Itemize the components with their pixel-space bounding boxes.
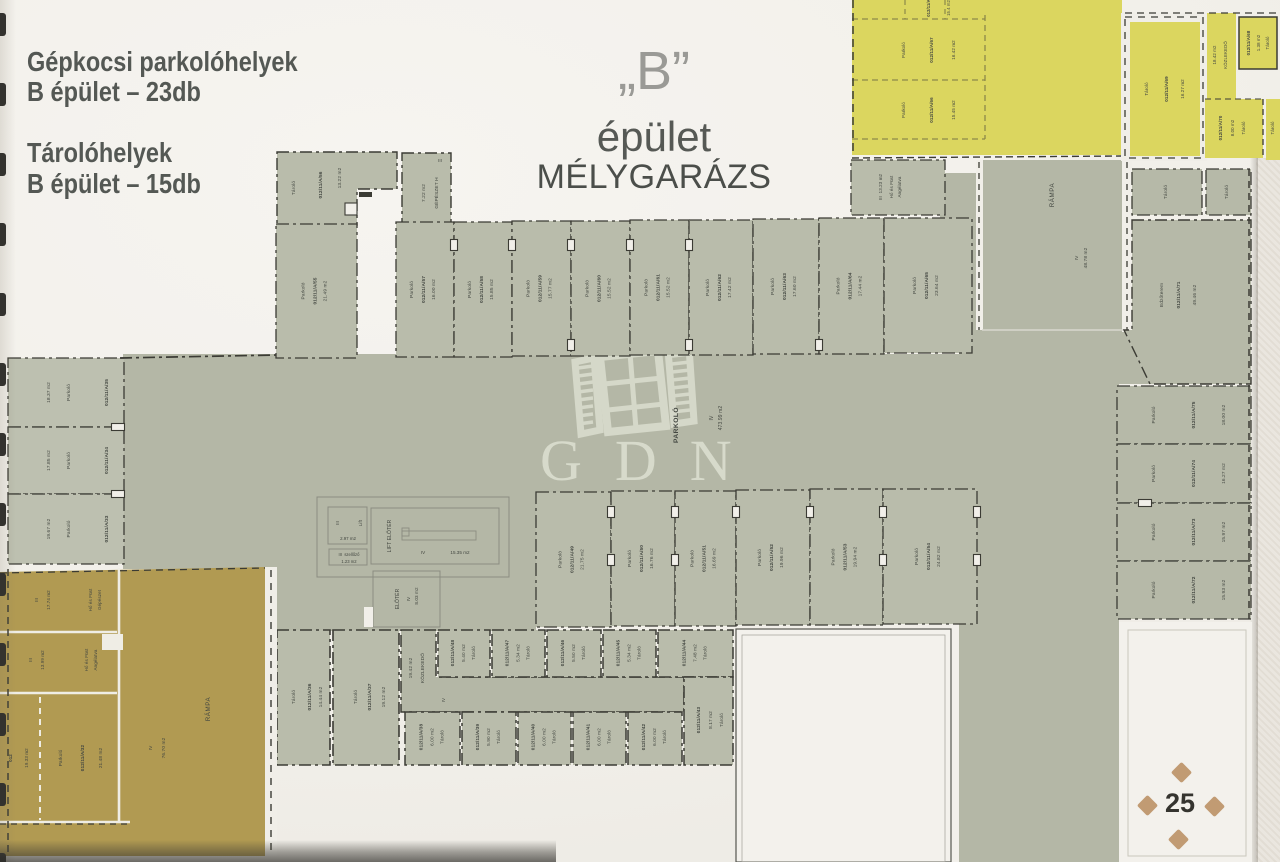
svg-text:19.33 m2: 19.33 m2 xyxy=(24,748,29,768)
svg-text:012/11/A/57: 012/11/A/57 xyxy=(421,276,427,303)
svg-text:Gépészet: Gépészet xyxy=(97,589,102,610)
svg-text:012/11/A/52: 012/11/A/52 xyxy=(769,544,775,571)
svg-text:Parkoló: Parkoló xyxy=(585,280,591,297)
svg-text:GÉPÉSZET H: GÉPÉSZET H xyxy=(433,177,440,209)
svg-text:PARKOLÓ: PARKOLÓ xyxy=(671,407,680,443)
svg-text:012/11/A/46: 012/11/A/46 xyxy=(560,640,565,667)
svg-text:Tároló: Tároló xyxy=(1144,82,1149,96)
svg-text:Tároló: Tároló xyxy=(581,646,586,660)
svg-text:19.67 m2: 19.67 m2 xyxy=(46,518,52,539)
svg-text:15.85 m2: 15.85 m2 xyxy=(489,279,495,300)
svg-text:012/11/A/35: 012/11/A/35 xyxy=(104,379,110,406)
svg-text:Parkoló: Parkoló xyxy=(627,550,633,567)
svg-text:RÁMPA: RÁMPA xyxy=(1049,182,1056,207)
svg-text:012/11/A/67: 012/11/A/67 xyxy=(929,37,934,63)
svg-text:012/11/A/43: 012/11/A/43 xyxy=(696,707,701,734)
svg-text:19.42 m2: 19.42 m2 xyxy=(408,657,414,678)
svg-text:Tároló: Tároló xyxy=(471,646,476,660)
svg-text:Parkoló: Parkoló xyxy=(690,550,696,567)
svg-text:Parkoló: Parkoló xyxy=(901,102,906,118)
svg-text:16.42 m2: 16.42 m2 xyxy=(951,40,956,60)
svg-text:Parkoló: Parkoló xyxy=(912,277,918,294)
svg-text:8.03 m2: 8.03 m2 xyxy=(414,587,419,605)
svg-text:012/11/A/58: 012/11/A/58 xyxy=(479,276,485,303)
svg-text:1.23 m2: 1.23 m2 xyxy=(341,559,357,564)
svg-text:Parkoló: Parkoló xyxy=(409,281,415,298)
svg-text:III: III xyxy=(28,658,33,662)
svg-text:19.94 m2: 19.94 m2 xyxy=(853,546,859,567)
svg-text:13.22 m2: 13.22 m2 xyxy=(337,167,343,188)
svg-text:15.35 m2: 15.35 m2 xyxy=(450,550,470,555)
svg-text:17.85 m2: 17.85 m2 xyxy=(46,450,52,471)
svg-text:012/11/A/38: 012/11/A/38 xyxy=(419,724,424,751)
svg-text:21.48 m2: 21.48 m2 xyxy=(98,748,103,769)
svg-text:012/11/A/37: 012/11/A/37 xyxy=(367,683,373,710)
svg-text:21.49 m2: 21.49 m2 xyxy=(323,280,329,301)
svg-text:Tároló: Tároló xyxy=(1270,121,1275,135)
svg-text:Parkoló: Parkoló xyxy=(836,277,842,294)
svg-text:012/11/A/39: 012/11/A/39 xyxy=(475,724,480,751)
svg-text:012/11/A/63: 012/11/A/63 xyxy=(782,273,788,300)
svg-text:Parkoló: Parkoló xyxy=(1151,406,1157,423)
svg-text:012/11/A/48: 012/11/A/48 xyxy=(450,640,455,667)
svg-text:III szellőző: III szellőző xyxy=(339,552,361,557)
svg-text:15.4 m2: 15.4 m2 xyxy=(946,0,951,16)
svg-text:8.17 m2: 8.17 m2 xyxy=(708,711,713,729)
svg-text:473.99 m2: 473.99 m2 xyxy=(718,406,724,431)
svg-text:Parkoló: Parkoló xyxy=(1151,581,1157,598)
svg-text:17.74 m2: 17.74 m2 xyxy=(46,590,51,610)
svg-text:Tároló: Tároló xyxy=(526,646,531,660)
svg-text:012/11/A/73: 012/11/A/73 xyxy=(1191,518,1197,545)
svg-text:5.34 m2: 5.34 m2 xyxy=(516,644,521,662)
svg-text:012/11/A/47: 012/11/A/47 xyxy=(505,640,510,667)
svg-text:Edzőterem: Edzőterem xyxy=(1159,283,1165,307)
svg-text:012/11/A/69: 012/11/A/69 xyxy=(1164,76,1169,102)
svg-text:IV: IV xyxy=(148,745,154,750)
svg-text:6.00 m2: 6.00 m2 xyxy=(652,728,657,746)
svg-text:KÖZLEKEDŐ: KÖZLEKEDŐ xyxy=(419,653,426,683)
svg-text:012/11/A/42: 012/11/A/42 xyxy=(641,724,646,751)
svg-text:Hő és Füst: Hő és Füst xyxy=(84,648,89,671)
svg-text:012/11/A/56: 012/11/A/56 xyxy=(318,171,324,198)
svg-text:18.00 m2: 18.00 m2 xyxy=(1221,404,1227,425)
svg-text:012/11/A/36: 012/11/A/36 xyxy=(307,683,313,710)
svg-text:19.96 m2: 19.96 m2 xyxy=(779,547,785,568)
svg-text:17.42 m2: 17.42 m2 xyxy=(727,277,733,298)
svg-text:6.00 m2: 6.00 m2 xyxy=(430,728,435,746)
svg-text:5.90 m2: 5.90 m2 xyxy=(486,728,491,746)
svg-text:5.34 m2: 5.34 m2 xyxy=(627,644,632,662)
svg-text:18.42 m2: 18.42 m2 xyxy=(1212,45,1217,65)
svg-text:IV: IV xyxy=(1074,255,1080,260)
svg-text:Parkoló: Parkoló xyxy=(1151,465,1157,482)
svg-text:012/11/A/55: 012/11/A/55 xyxy=(313,277,319,304)
svg-text:Parkoló: Parkoló xyxy=(757,549,763,566)
svg-text:Parkoló: Parkoló xyxy=(558,551,564,568)
svg-text:012/11/A/45: 012/11/A/45 xyxy=(616,640,621,667)
svg-text:012/11/A/75: 012/11/A/75 xyxy=(1191,401,1197,428)
svg-text:Parkoló: Parkoló xyxy=(301,282,307,299)
svg-text:1.38 m2: 1.38 m2 xyxy=(1256,34,1261,51)
svg-text:012/11/A/71: 012/11/A/71 xyxy=(1176,281,1182,308)
svg-text:012/11/A/51: 012/11/A/51 xyxy=(702,545,708,572)
svg-text:Angélatva: Angélatva xyxy=(897,176,902,197)
svg-text:012/11/A/72: 012/11/A/72 xyxy=(1191,576,1197,603)
svg-text:ELŐTÉR: ELŐTÉR xyxy=(394,588,401,609)
svg-text:Tároló: Tároló xyxy=(1163,185,1169,199)
svg-text:012/11/A/61: 012/11/A/61 xyxy=(656,274,662,301)
svg-text:012/11/A/65: 012/11/A/65 xyxy=(924,272,930,299)
svg-text:012/11/A/60: 012/11/A/60 xyxy=(597,275,603,302)
svg-text:012/11/A/50: 012/11/A/50 xyxy=(639,545,645,572)
svg-text:7.22 m2: 7.22 m2 xyxy=(421,184,427,202)
svg-text:Tároló: Tároló xyxy=(353,690,359,704)
svg-text:6.00 m2: 6.00 m2 xyxy=(597,728,602,746)
svg-text:Tároló: Tároló xyxy=(440,730,445,744)
svg-text:012/11/A/40: 012/11/A/40 xyxy=(531,724,536,751)
svg-text:Parkoló: Parkoló xyxy=(831,548,837,565)
svg-text:15.52 m2: 15.52 m2 xyxy=(607,278,613,299)
svg-text:18.37 m2: 18.37 m2 xyxy=(46,382,52,403)
svg-text:15.52 m2: 15.52 m2 xyxy=(666,277,672,298)
svg-text:012/11/A/44: 012/11/A/44 xyxy=(682,640,687,667)
svg-text:Tároló: Tároló xyxy=(703,646,708,660)
svg-text:24.82 m2: 24.82 m2 xyxy=(936,546,942,567)
svg-text:Parkoló: Parkoló xyxy=(705,279,711,296)
svg-text:16.76 m2: 16.76 m2 xyxy=(649,548,655,569)
svg-text:5.50 m2: 5.50 m2 xyxy=(571,644,576,662)
svg-text:Parkoló: Parkoló xyxy=(66,384,72,401)
svg-text:5.40 m2: 5.40 m2 xyxy=(461,644,466,662)
svg-text:012/11/A/33: 012/11/A/33 xyxy=(104,515,110,542)
svg-text:III: III xyxy=(438,158,442,163)
svg-text:012/11/A/59: 012/11/A/59 xyxy=(538,275,544,302)
svg-text:6.00 m2: 6.00 m2 xyxy=(542,728,547,746)
svg-text:LIFT ELŐTÉR: LIFT ELŐTÉR xyxy=(386,519,393,552)
svg-text:Tároló: Tároló xyxy=(1224,185,1230,199)
svg-text:Parkoló: Parkoló xyxy=(901,42,906,58)
svg-text:Angélatva: Angélatva xyxy=(93,649,98,670)
svg-text:Hő és Füst: Hő és Füst xyxy=(889,175,894,198)
svg-text:14.44 m2: 14.44 m2 xyxy=(318,686,324,707)
svg-text:Parkoló: Parkoló xyxy=(526,280,532,297)
svg-text:IV: IV xyxy=(441,698,446,702)
svg-text:Parkoló: Parkoló xyxy=(914,548,920,565)
svg-text:012/11/A/62: 012/11/A/62 xyxy=(717,274,723,301)
svg-text:012/11/A/64: 012/11/A/64 xyxy=(848,272,854,299)
svg-text:Parkoló: Parkoló xyxy=(66,520,72,537)
svg-text:KÖZLEKEDŐ: KÖZLEKEDŐ xyxy=(1223,41,1228,69)
svg-text:15.93 m2: 15.93 m2 xyxy=(1221,579,1227,600)
svg-text:Parkoló: Parkoló xyxy=(770,278,776,295)
svg-text:Tároló: Tároló xyxy=(552,730,557,744)
svg-text:16.27 m2: 16.27 m2 xyxy=(1180,79,1185,99)
svg-text:Parkoló: Parkoló xyxy=(644,279,650,296)
svg-text:III: III xyxy=(335,521,340,525)
svg-text:IV: IV xyxy=(709,415,715,420)
svg-text:Tároló: Tároló xyxy=(496,730,501,744)
svg-text:23.64 m2: 23.64 m2 xyxy=(934,275,940,296)
svg-text:012/11/A/66: 012/11/A/66 xyxy=(929,97,934,123)
svg-text:7.48 m2: 7.48 m2 xyxy=(693,644,698,662)
svg-text:16.00 m2: 16.00 m2 xyxy=(431,279,437,300)
svg-text:Tároló: Tároló xyxy=(1241,121,1246,135)
svg-text:012/11/A/74: 012/11/A/74 xyxy=(1191,460,1197,487)
svg-text:GDN: GDN xyxy=(540,428,765,493)
svg-text:Tároló: Tároló xyxy=(607,730,612,744)
svg-text:Tároló: Tároló xyxy=(637,646,642,660)
svg-text:15.77 m2: 15.77 m2 xyxy=(548,278,554,299)
svg-text:Parkoló: Parkoló xyxy=(58,749,63,766)
svg-text:15.97 m2: 15.97 m2 xyxy=(1221,521,1227,542)
svg-text:Lift: Lift xyxy=(358,519,363,526)
svg-text:16.27 m2: 16.27 m2 xyxy=(1221,463,1227,484)
svg-text:21.75 m2: 21.75 m2 xyxy=(580,549,586,570)
svg-text:76.70 m2: 76.70 m2 xyxy=(161,737,167,758)
svg-text:012/11/A/53: 012/11/A/53 xyxy=(843,543,849,570)
svg-text:8.00 m2: 8.00 m2 xyxy=(1230,119,1235,136)
svg-text:49.46 m2: 49.46 m2 xyxy=(1192,284,1198,305)
svg-text:17.44 m2: 17.44 m2 xyxy=(858,275,864,296)
svg-text:48.78 m2: 48.78 m2 xyxy=(1083,247,1089,268)
svg-text:16.69 m2: 16.69 m2 xyxy=(712,548,718,569)
svg-text:012/11/A/41: 012/11/A/41 xyxy=(586,724,591,751)
svg-text:012/11/A/68: 012/11/A/68 xyxy=(1246,30,1251,55)
svg-text:Tároló: Tároló xyxy=(291,690,297,704)
svg-text:13.99 m2: 13.99 m2 xyxy=(40,650,45,670)
svg-text:012/11/A: 012/11/A xyxy=(926,0,931,17)
svg-text:17.60 m2: 17.60 m2 xyxy=(792,276,798,297)
svg-text:Tároló: Tároló xyxy=(1265,36,1270,50)
svg-text:Parkoló: Parkoló xyxy=(66,452,72,469)
svg-text:III 13.23 m2: III 13.23 m2 xyxy=(878,173,883,200)
svg-text:012/11/A/34: 012/11/A/34 xyxy=(104,447,110,474)
svg-text:Parkoló: Parkoló xyxy=(467,281,473,298)
svg-text:19.12 m2: 19.12 m2 xyxy=(381,686,387,707)
svg-text:III: III xyxy=(34,598,39,602)
svg-text:012/11/A/32: 012/11/A/32 xyxy=(80,745,85,772)
svg-text:15.45 m2: 15.45 m2 xyxy=(951,100,956,120)
svg-text:012/11/A/54: 012/11/A/54 xyxy=(926,543,932,570)
svg-text:Tároló: Tároló xyxy=(662,730,667,744)
svg-text:2.97 m2: 2.97 m2 xyxy=(340,536,356,541)
svg-text:Hő és Füst: Hő és Füst xyxy=(88,588,93,611)
svg-text:Tároló: Tároló xyxy=(291,181,297,195)
svg-text:Parkoló: Parkoló xyxy=(1151,523,1157,540)
svg-text:012/11/A/70: 012/11/A/70 xyxy=(1218,115,1223,140)
svg-text:RÁMPA: RÁMPA xyxy=(205,696,212,721)
svg-text:012/11/A/49: 012/11/A/49 xyxy=(570,546,576,573)
svg-text:Tároló: Tároló xyxy=(719,713,724,727)
